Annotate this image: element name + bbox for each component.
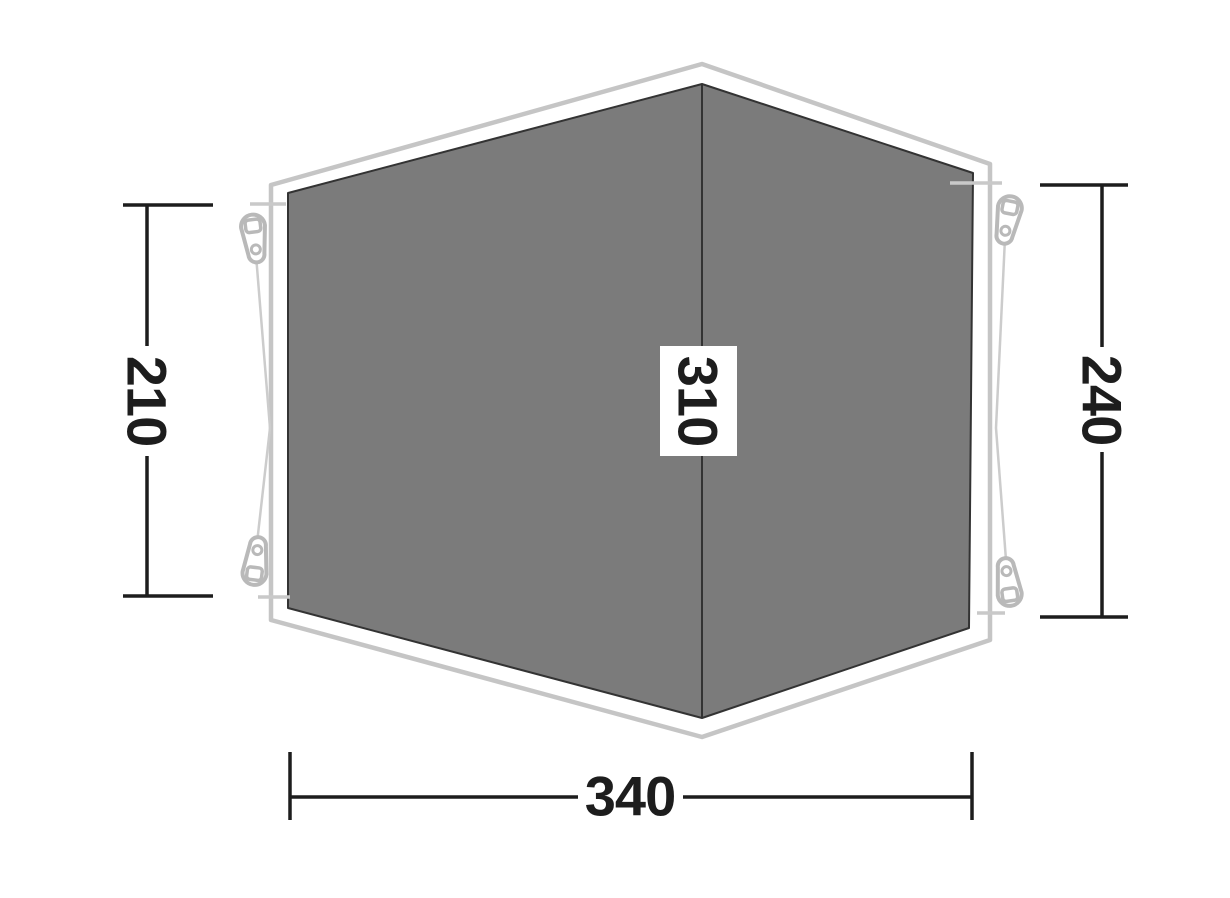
dimension-left-label: 210 [116,356,179,446]
groundsheet [288,84,973,718]
peg-tensioner-icon-bottom-right [993,557,1023,608]
peg-tensioner-icon-bottom-left [241,536,271,587]
guyline-right [996,238,1006,560]
dimension-right-label: 240 [1071,355,1134,445]
peg-tensioner-icon-top-left [240,213,270,264]
diagram-canvas: 210 240 340 310 [0,0,1230,898]
dimension-bottom-label: 340 [585,765,675,828]
peg-tensioner-icon-top-right [991,194,1024,246]
guyline-left [256,255,270,543]
tent-dimension-diagram: 210 240 340 310 [0,0,1230,898]
dimension-ridge-label: 310 [667,356,730,446]
